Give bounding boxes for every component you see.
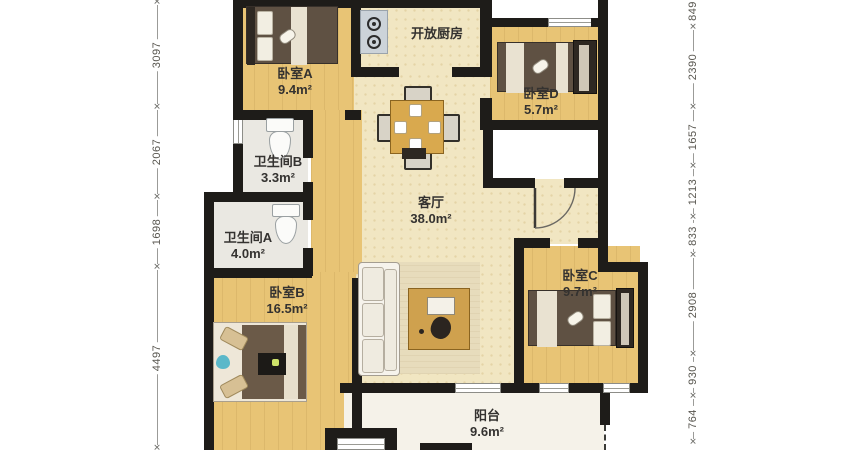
stove-icon [360, 10, 388, 54]
dimension-value: 930 [687, 362, 699, 388]
dimension-value: 1213 [687, 175, 699, 207]
bed-bedroom-a [246, 6, 338, 64]
room-label-bedroom-a: 卧室A 9.4m² [277, 66, 312, 99]
wall [483, 178, 535, 188]
room-name: 卫生间B [254, 154, 302, 170]
dimension-value: 4497 [151, 341, 163, 373]
room-name: 阳台 [470, 408, 504, 424]
dimension-tick [689, 438, 697, 447]
dimension-tick [689, 213, 697, 222]
dimension-value: 3097 [151, 38, 163, 70]
dimension-tick [153, 263, 161, 272]
window [539, 383, 569, 393]
dimension-value: 833 [687, 223, 699, 249]
room-area: 5.7m² [523, 102, 558, 118]
corridor-floor [311, 110, 362, 274]
room-name: 卧室A [277, 66, 312, 82]
room-label-bedroom-d: 卧室D 5.7m² [523, 86, 558, 119]
wall [303, 192, 313, 220]
dimension-value: 764 [687, 406, 699, 432]
room-area: 38.0m² [410, 211, 451, 227]
dining-table [390, 100, 444, 154]
room-area: 9.4m² [277, 82, 312, 98]
dimension-tick [153, 0, 161, 7]
wall [204, 268, 312, 278]
tv-icon [402, 148, 426, 159]
wall [351, 67, 399, 77]
window [548, 18, 593, 27]
dimension-tick [689, 23, 697, 32]
dimension-value: 2390 [687, 51, 699, 83]
dimension-value: 1698 [151, 216, 163, 248]
room-label-bedroom-c: 卧室C 9.7m² [562, 268, 597, 301]
window [455, 383, 501, 393]
bed-bedroom-b [213, 322, 307, 402]
dimension-tick [153, 444, 161, 450]
wall [233, 144, 243, 198]
entry-alcove [493, 129, 599, 179]
dimension-tick [153, 103, 161, 112]
room-name: 卧室B [266, 285, 307, 301]
wall [204, 192, 214, 278]
dimension-right-4: 1213 [686, 166, 700, 217]
dimension-right-3: 1657 [686, 107, 700, 166]
dimension-left-1: 3097 [150, 2, 164, 107]
room-area: 16.5m² [266, 301, 307, 317]
appliance-niche [337, 438, 385, 450]
wall [480, 0, 492, 68]
floor-plan: 卧室A 9.4m² 开放厨房 卧室D 5.7m² 卫生间B 3.3m² 卫生间A… [0, 0, 856, 450]
wall [204, 192, 313, 202]
dimension-tick [153, 193, 161, 202]
balcony-open-edge [604, 425, 612, 450]
dimension-value: 849 [687, 0, 699, 23]
room-label-bedroom-b: 卧室B 16.5m² [266, 285, 307, 318]
wall [501, 383, 539, 393]
room-name: 卧室D [523, 86, 558, 102]
dimension-value: 2067 [151, 136, 163, 168]
wall [340, 383, 455, 393]
toilet-bathroom-a [270, 204, 300, 244]
wall [325, 438, 337, 450]
wall [564, 178, 608, 188]
wall [598, 0, 608, 271]
wall [345, 110, 361, 120]
wall [600, 393, 610, 425]
room-name: 卫生间A [224, 230, 272, 246]
room-name: 开放厨房 [411, 26, 463, 42]
window [603, 383, 630, 393]
wall [233, 0, 243, 118]
wall [569, 383, 603, 393]
dimension-tick [689, 103, 697, 112]
wall [385, 438, 397, 450]
wall [578, 238, 606, 248]
dimension-tick [689, 162, 697, 171]
dimension-value: 1657 [687, 120, 699, 152]
wardrobe-bedroom-d [573, 40, 597, 94]
dimension-right-2: 2390 [686, 27, 700, 107]
room-name: 客厅 [410, 195, 451, 211]
wall [514, 238, 524, 388]
dimension-left-3: 1698 [150, 197, 164, 267]
dimension-tick [689, 350, 697, 359]
room-area: 9.7m² [562, 284, 597, 300]
room-label-open-kitchen: 开放厨房 [411, 26, 463, 42]
room-label-bathroom-a: 卫生间A 4.0m² [224, 230, 272, 263]
bed-bedroom-d [497, 42, 575, 92]
dimension-left-2: 2067 [150, 107, 164, 197]
room-name: 卧室C [562, 268, 597, 284]
wall [303, 110, 313, 158]
coffee-table [408, 288, 470, 350]
dimension-left-4: 4497 [150, 267, 164, 448]
dimension-right-6: 2908 [686, 255, 700, 354]
dimension-value: 2908 [687, 288, 699, 320]
window [233, 118, 243, 144]
wall [630, 383, 648, 393]
room-area: 9.6m² [470, 424, 504, 440]
entry-hall-floor [520, 182, 608, 244]
wall [325, 428, 397, 438]
dimension-tick [689, 251, 697, 260]
room-area: 4.0m² [224, 246, 272, 262]
sofa [358, 262, 400, 376]
wall [420, 443, 472, 450]
room-label-bathroom-b: 卫生间B 3.3m² [254, 154, 302, 187]
dimension-right-8: 764 [686, 396, 700, 442]
room-label-living-room: 客厅 38.0m² [410, 195, 451, 228]
room-area: 3.3m² [254, 170, 302, 186]
wall [452, 67, 492, 77]
dimension-tick [689, 392, 697, 401]
wall [486, 18, 548, 27]
room-label-balcony: 阳台 9.6m² [470, 408, 504, 441]
wall [483, 120, 608, 130]
wall [638, 262, 648, 392]
wardrobe-bedroom-c [616, 288, 634, 348]
